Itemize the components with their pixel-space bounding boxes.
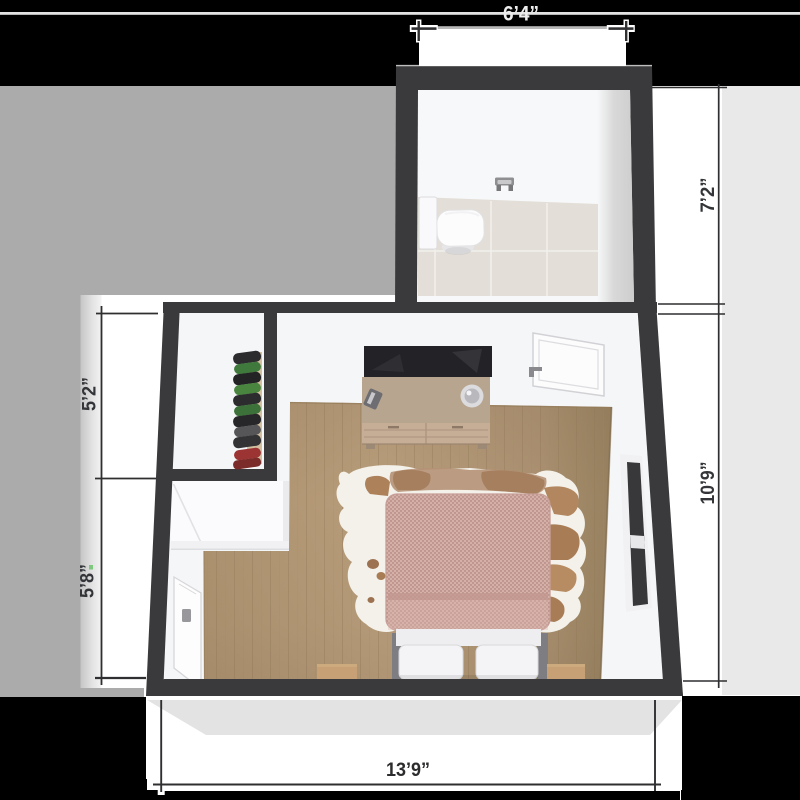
- svg-text:6’4”: 6’4”: [503, 3, 539, 26]
- svg-text:13’9”: 13’9”: [386, 760, 430, 781]
- svg-text:5’8”: 5’8”: [78, 564, 99, 598]
- svg-text:7’2”: 7’2”: [698, 178, 719, 213]
- svg-text:5’2”: 5’2”: [80, 377, 101, 411]
- svg-text:10’9”: 10’9”: [698, 462, 719, 505]
